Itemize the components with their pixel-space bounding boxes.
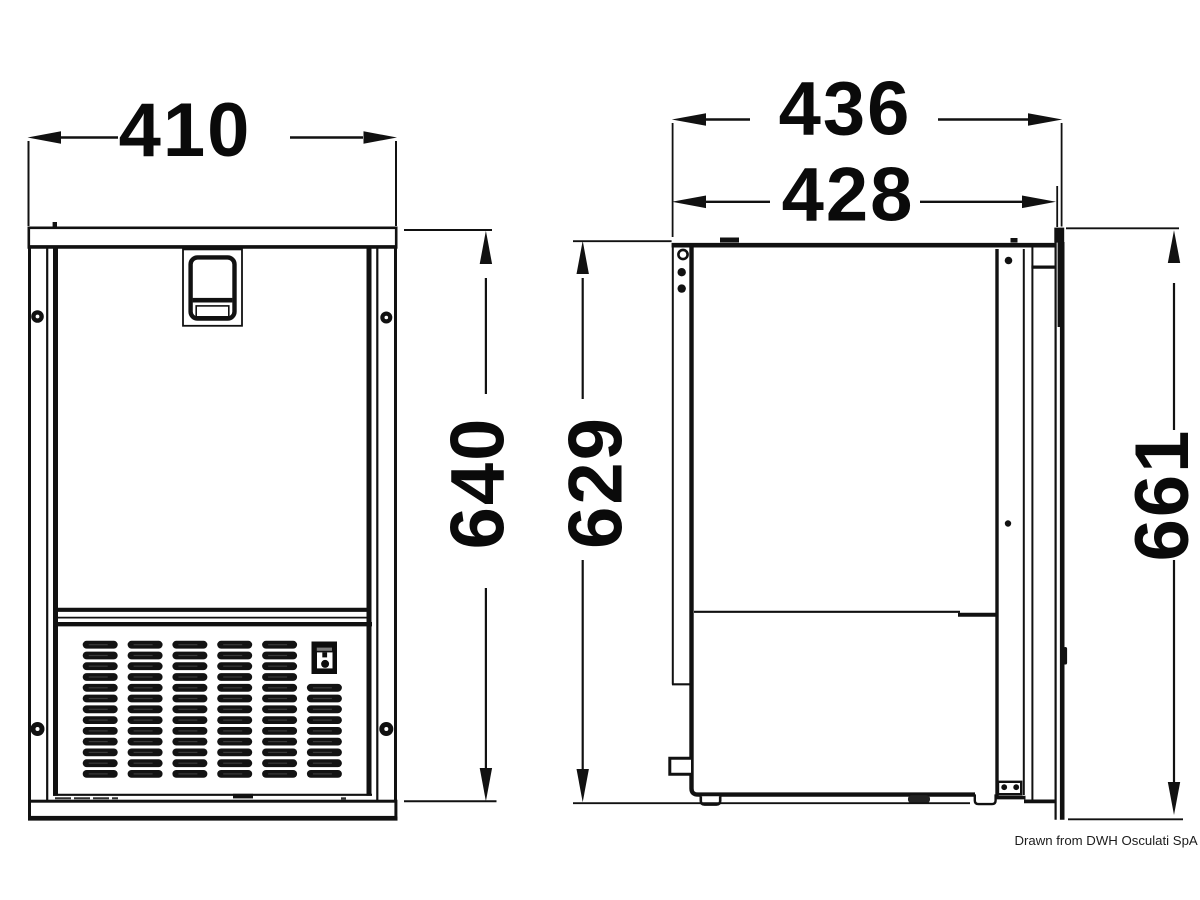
svg-text:661: 661 (1120, 429, 1200, 562)
svg-text:640: 640 (436, 417, 521, 550)
svg-text:428: 428 (782, 153, 915, 238)
svg-text:629: 629 (554, 416, 639, 549)
svg-text:Drawn from DWH Osculati SpA: Drawn from DWH Osculati SpA (1015, 833, 1198, 848)
svg-text:410: 410 (119, 88, 252, 173)
svg-text:436: 436 (779, 67, 912, 152)
